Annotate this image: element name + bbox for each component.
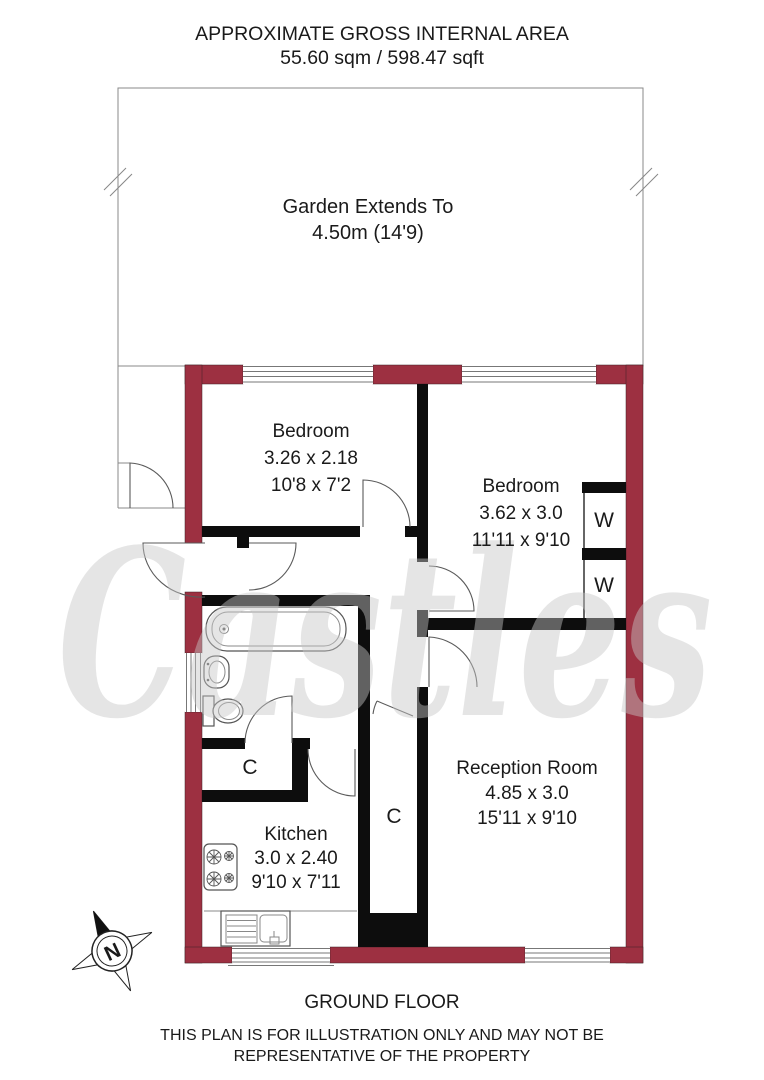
kitchen-imperial: 9'10 x 7'11 <box>251 872 340 893</box>
bedroom2-metric: 3.62 x 3.0 <box>479 503 562 524</box>
kitchen-metric: 3.0 x 2.40 <box>254 848 337 869</box>
floorplan-canvas: Castles APPROXIMATE GROSS INTERNAL AREA … <box>0 0 764 1080</box>
garden-label-line1: Garden Extends To <box>283 196 454 218</box>
cupboard1-label: C <box>242 756 257 779</box>
window-kitchen <box>228 947 334 966</box>
garden-label-line2: 4.50m (14'9) <box>312 222 424 244</box>
window-reception <box>525 947 610 963</box>
floorplan-page: Castles APPROXIMATE GROSS INTERNAL AREA … <box>0 0 764 1080</box>
reception-name: Reception Room <box>456 758 598 779</box>
header-area: 55.60 sqm / 598.47 sqft <box>280 47 484 69</box>
kitchen-name: Kitchen <box>264 824 327 845</box>
wardrobe2-label: W <box>594 574 614 597</box>
bedroom1-name: Bedroom <box>272 421 349 442</box>
floor-title: GROUND FLOOR <box>304 992 459 1013</box>
wardrobe1-label: W <box>594 509 614 532</box>
window-bedroom1 <box>243 365 373 384</box>
reception-metric: 4.85 x 3.0 <box>485 783 568 804</box>
disclaimer-line2: REPRESENTATIVE OF THE PROPERTY <box>234 1048 531 1065</box>
reception-imperial: 15'11 x 9'10 <box>477 808 577 829</box>
header-title: APPROXIMATE GROSS INTERNAL AREA <box>195 23 569 45</box>
bedroom1-metric: 3.26 x 2.18 <box>264 448 358 469</box>
cupboard2-label: C <box>386 805 401 828</box>
window-bedroom2 <box>462 365 596 384</box>
bedroom2-name: Bedroom <box>482 476 559 497</box>
sink-unit <box>221 911 290 946</box>
bedroom2-imperial: 11'11 x 9'10 <box>472 530 570 551</box>
disclaimer-line1: THIS PLAN IS FOR ILLUSTRATION ONLY AND M… <box>160 1027 604 1044</box>
watermark-text: Castles <box>58 500 713 770</box>
bedroom1-imperial: 10'8 x 7'2 <box>271 475 351 496</box>
